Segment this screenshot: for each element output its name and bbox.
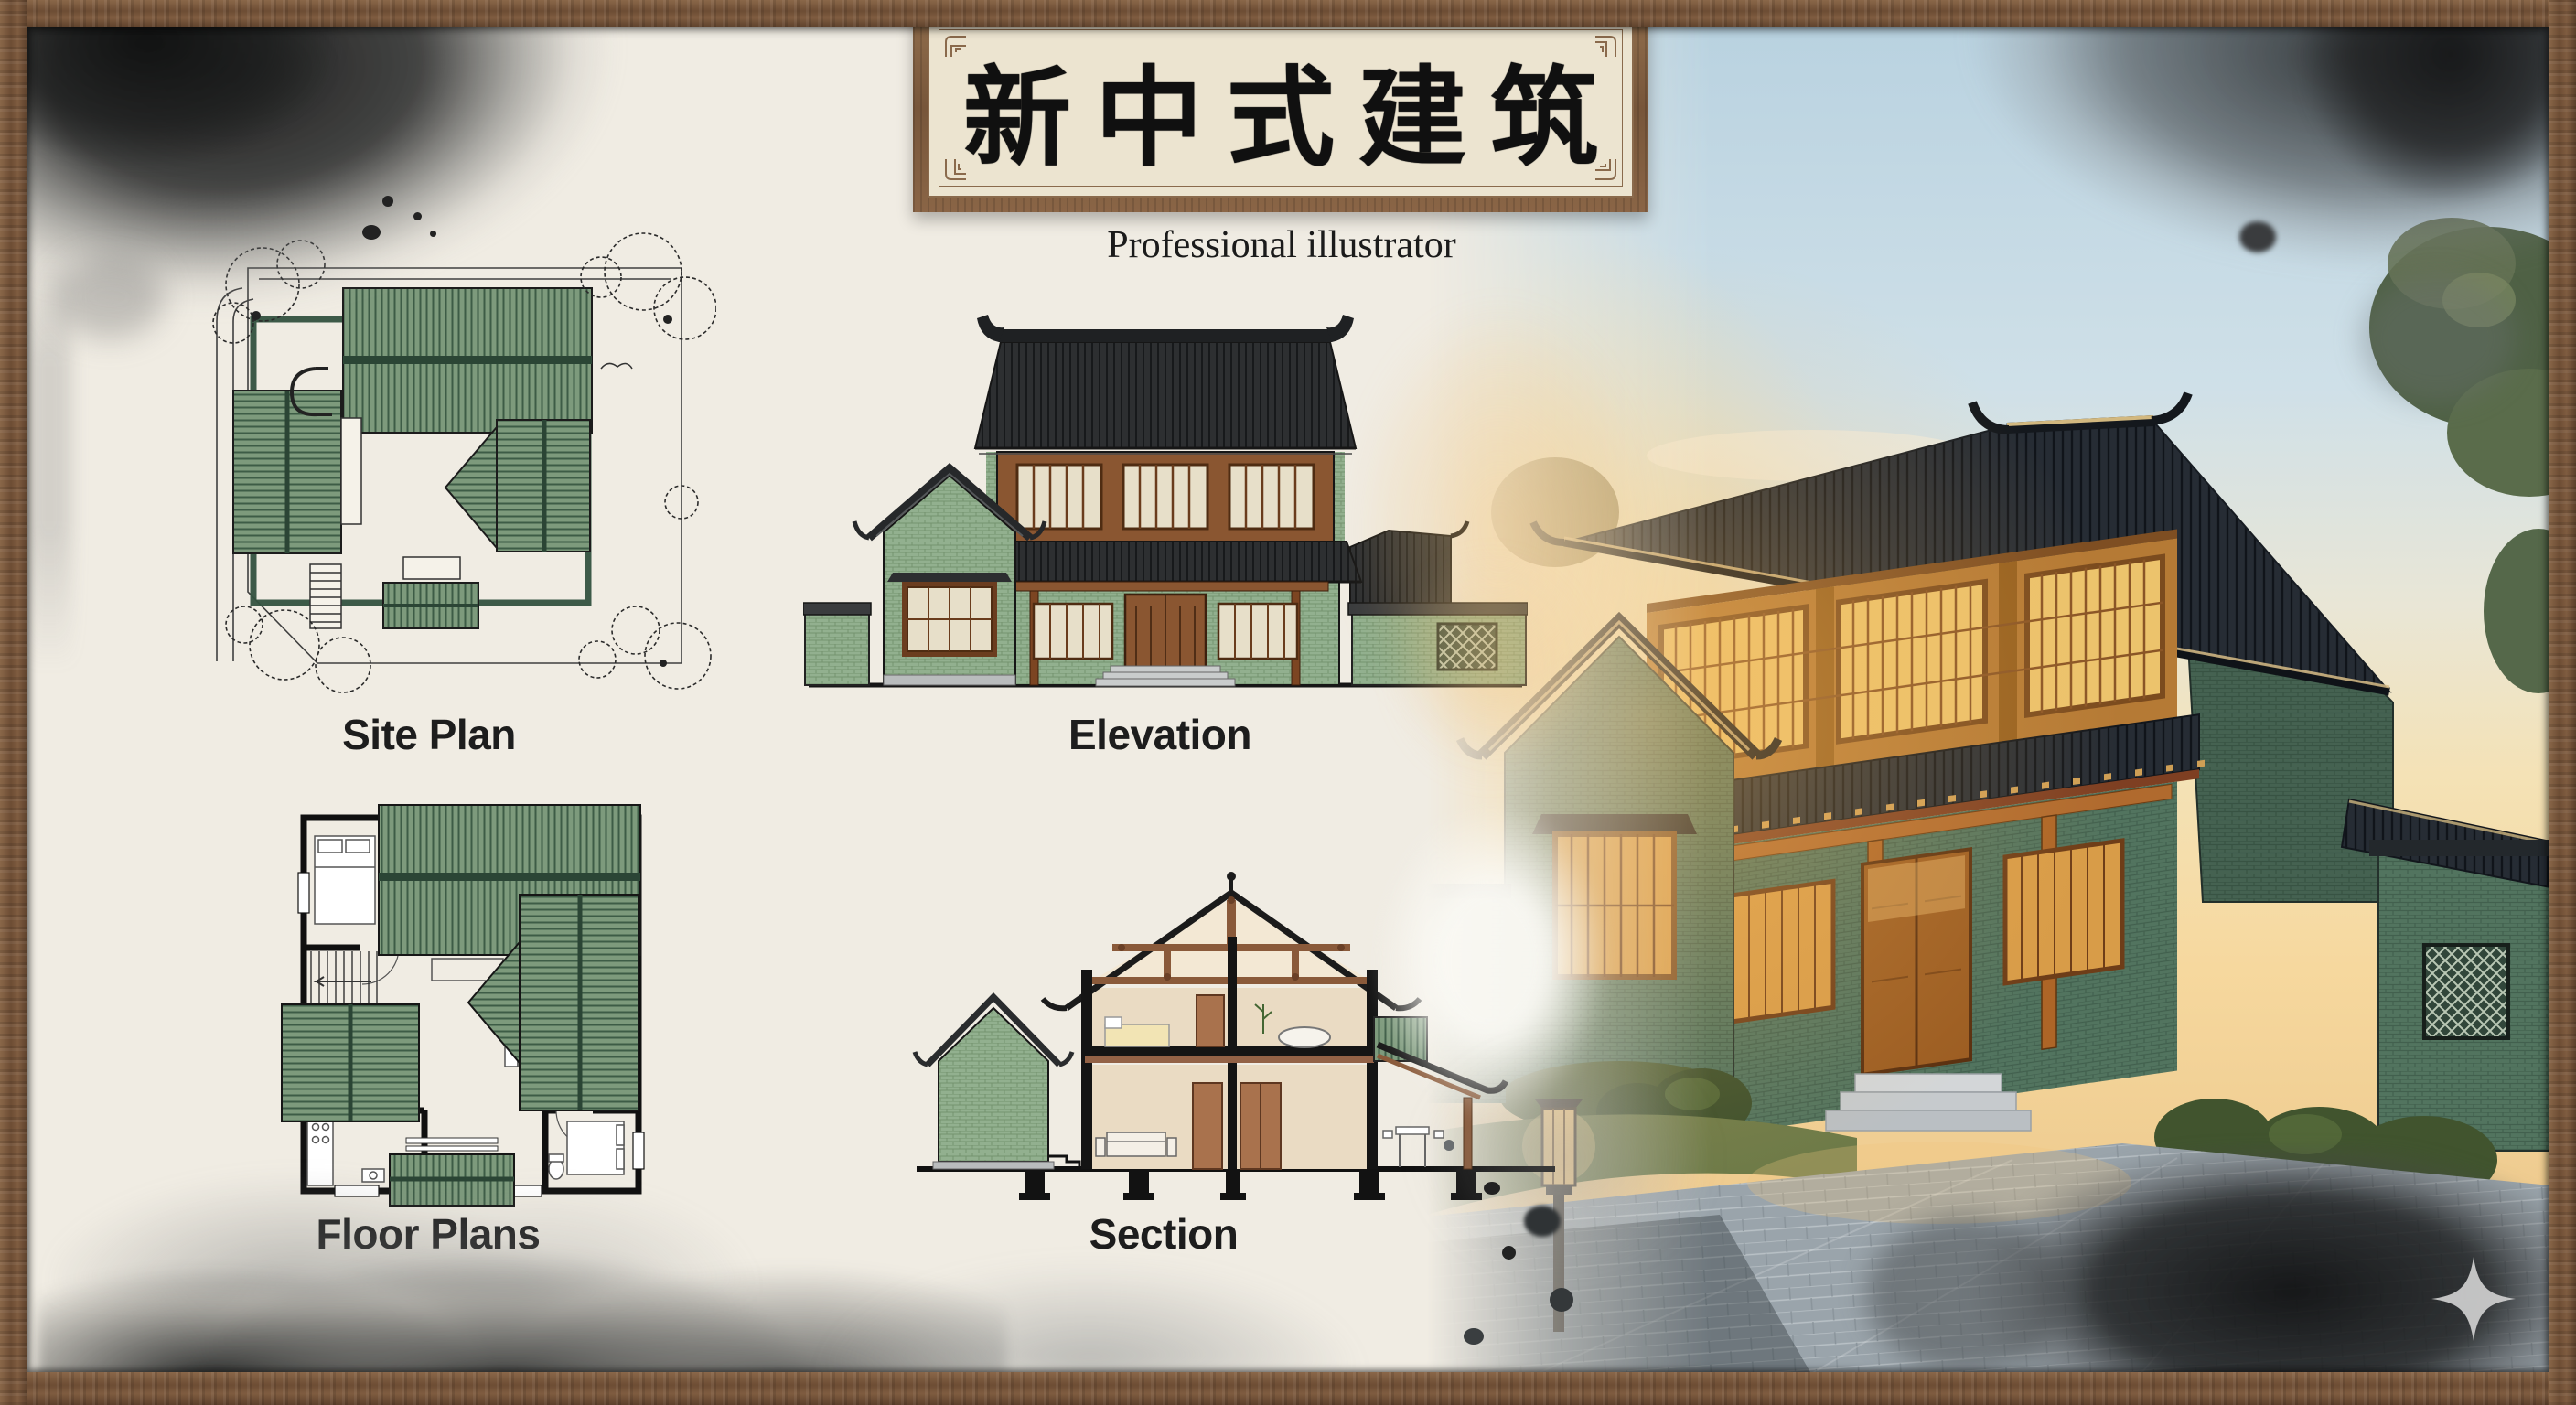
right-background-wing: [1350, 521, 1467, 604]
presentation-board: 新中式建筑 Professional illustrator: [0, 0, 2576, 1405]
left-wing-roof: [233, 391, 361, 553]
gate-roof: [383, 557, 478, 628]
ink-dot: [362, 225, 381, 240]
title-plaque: 新中式建筑: [913, 4, 1648, 212]
panel-label-site-plan: Site Plan: [342, 710, 516, 759]
ink-dot: [1524, 1206, 1561, 1237]
ink-dot: [413, 212, 422, 220]
panel-label-section: Section: [1089, 1209, 1239, 1259]
right-porch: [1374, 1017, 1506, 1169]
wooden-frame-top: [0, 0, 2576, 27]
title-plaque-panel: 新中式建筑: [928, 18, 1634, 198]
floor-plans-panel: [225, 785, 719, 1218]
lattice-panel: [1438, 624, 1497, 670]
left-low-wall: [803, 603, 871, 685]
wooden-frame-left: [0, 0, 27, 1405]
site-plan-drawing: [206, 231, 716, 705]
panel-label-floor-plans: Floor Plans: [317, 1209, 541, 1259]
section-drawing: [902, 816, 1570, 1220]
garden-steps: [310, 564, 341, 628]
left-roof-overlay: [282, 1004, 419, 1121]
ink-dot: [1550, 1288, 1573, 1312]
left-green-wing: [915, 997, 1079, 1169]
section-panel: [902, 816, 1570, 1220]
wooden-frame-right: [2549, 0, 2576, 1405]
main-block: [970, 315, 1361, 686]
gray-wash-left-edge: [27, 229, 71, 668]
sparkle-icon: [2430, 1255, 2517, 1343]
ink-dot: [1444, 1140, 1454, 1151]
panel-label-elevation: Elevation: [1068, 710, 1251, 759]
ink-dot: [1484, 1182, 1500, 1195]
stairs: [311, 951, 377, 1012]
foundation-piers: [1019, 1169, 1482, 1200]
site-plan-panel: [206, 231, 716, 705]
right-low-wall: [1348, 603, 1528, 685]
ink-smudge-left: [55, 256, 165, 338]
floor-plans-drawing: [225, 785, 719, 1218]
wooden-frame-bottom: [0, 1372, 2576, 1405]
ink-splash-top-left-core: [0, 0, 421, 220]
board-title: 新中式建筑: [929, 20, 1632, 196]
ink-dot: [1502, 1246, 1516, 1260]
elevation-panel: [803, 300, 1528, 708]
board-subtitle: Professional illustrator: [916, 223, 1648, 267]
ink-dot: [1464, 1328, 1484, 1345]
gate-roof-overlay: [390, 1138, 514, 1206]
main-building-roof: [343, 288, 592, 433]
ink-dot: [430, 231, 436, 237]
right-wing-roof: [445, 420, 590, 552]
elevation-drawing: [803, 300, 1528, 708]
ink-dot: [382, 196, 393, 207]
